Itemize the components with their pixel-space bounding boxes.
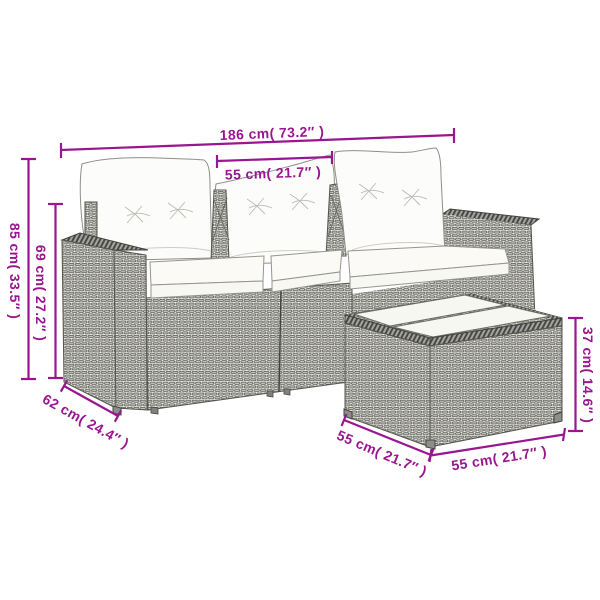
svg-text:85 cm( 33.5″ ): 85 cm( 33.5″ ) bbox=[7, 223, 23, 319]
svg-text:69 cm( 27.2″ ): 69 cm( 27.2″ ) bbox=[33, 245, 49, 341]
svg-text:55 cm( 21.7″ ): 55 cm( 21.7″ ) bbox=[225, 163, 322, 182]
svg-text:37 cm( 14.6″ ): 37 cm( 14.6″ ) bbox=[580, 327, 596, 423]
